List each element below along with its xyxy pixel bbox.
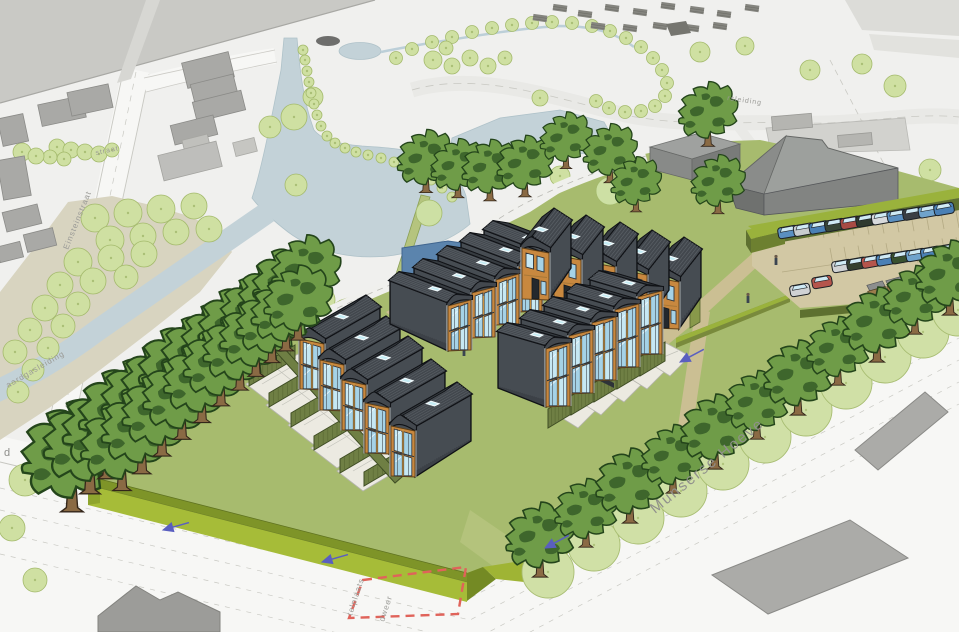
- svg-text:d: d: [4, 447, 11, 459]
